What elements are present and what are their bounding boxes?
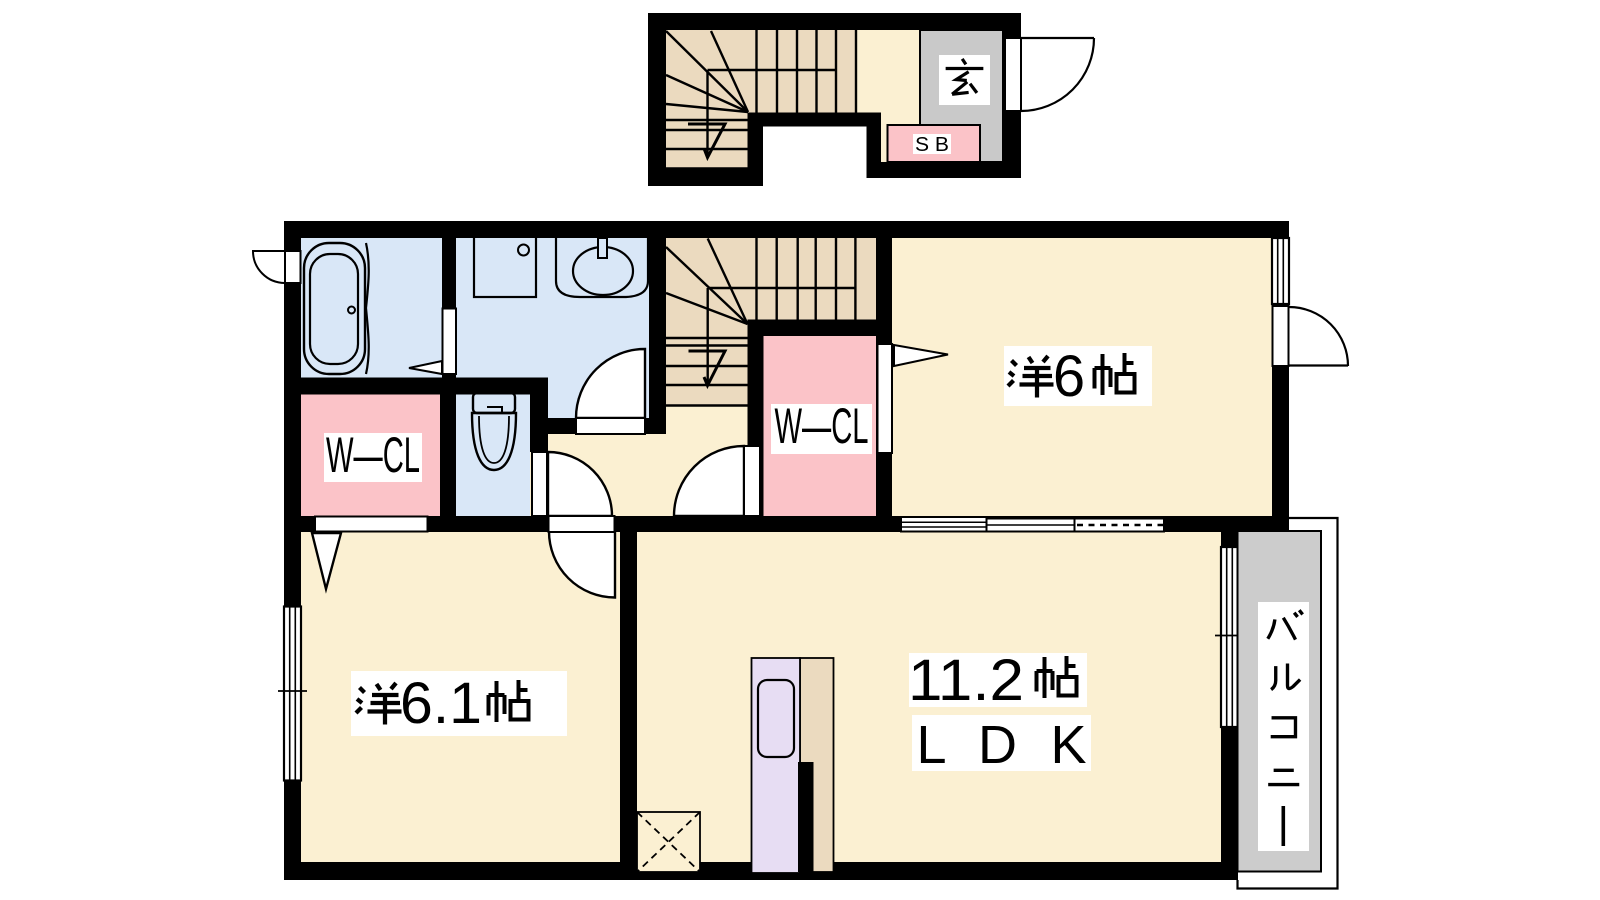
- svg-text:W—CL: W—CL: [326, 427, 420, 483]
- svg-text:6.1: 6.1: [400, 671, 482, 736]
- svg-text:L D K: L D K: [917, 715, 1087, 775]
- svg-text:S B: S B: [915, 134, 949, 156]
- svg-text:W—CL: W—CL: [775, 398, 869, 454]
- svg-text:6: 6: [1053, 344, 1085, 409]
- svg-text:11.2: 11.2: [908, 648, 1024, 713]
